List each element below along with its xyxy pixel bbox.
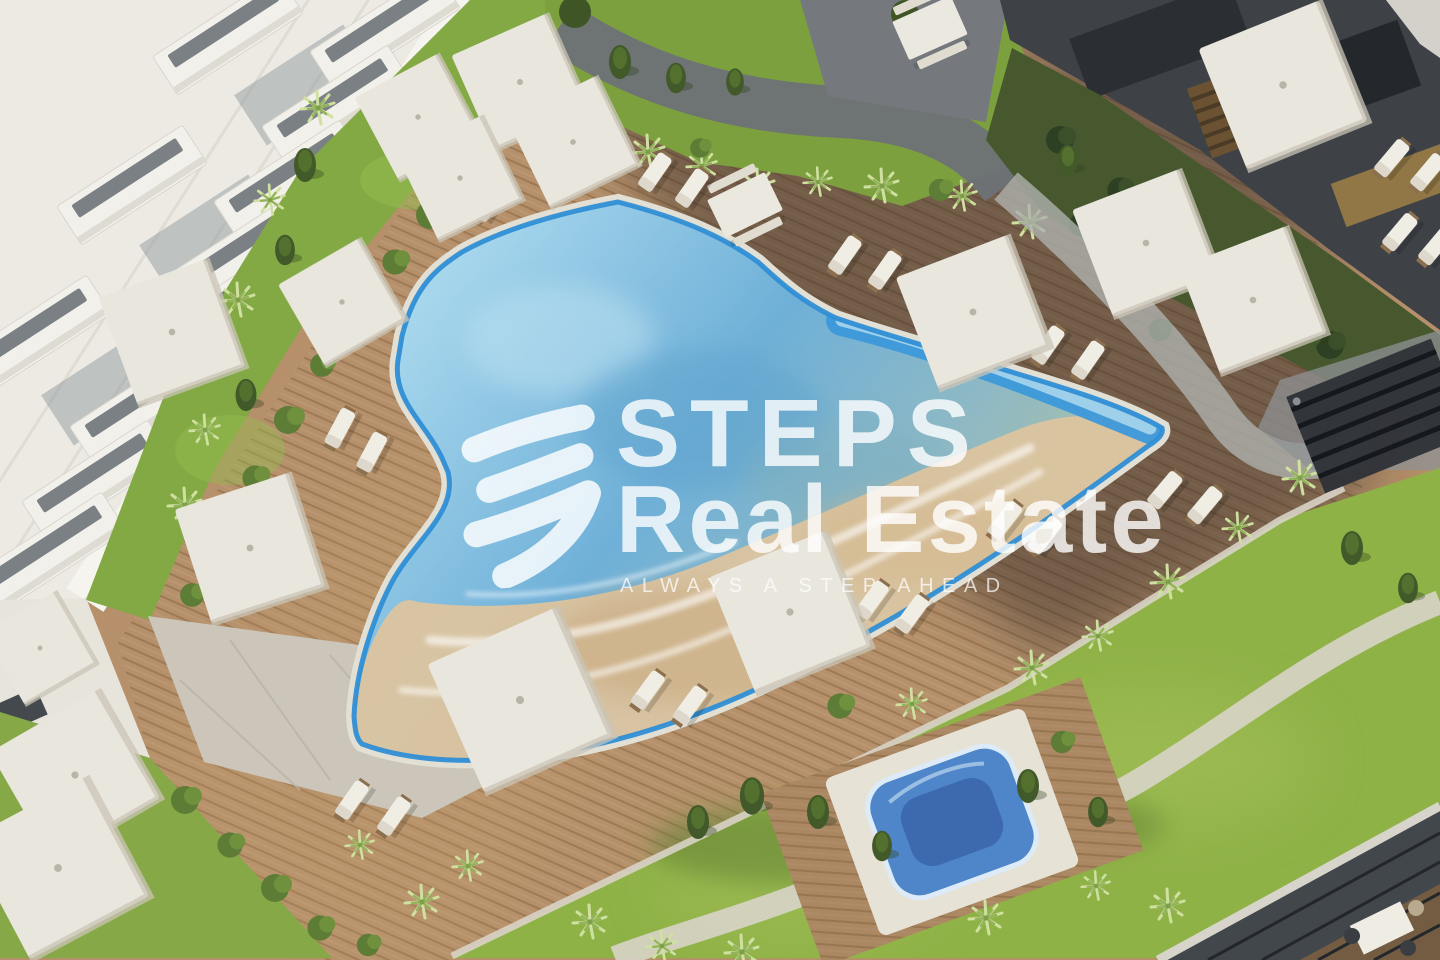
- courtyard-render: [0, 0, 1440, 960]
- property-render-image: STEPS Real Estate ALWAYS A STEP AHEAD: [0, 0, 1440, 960]
